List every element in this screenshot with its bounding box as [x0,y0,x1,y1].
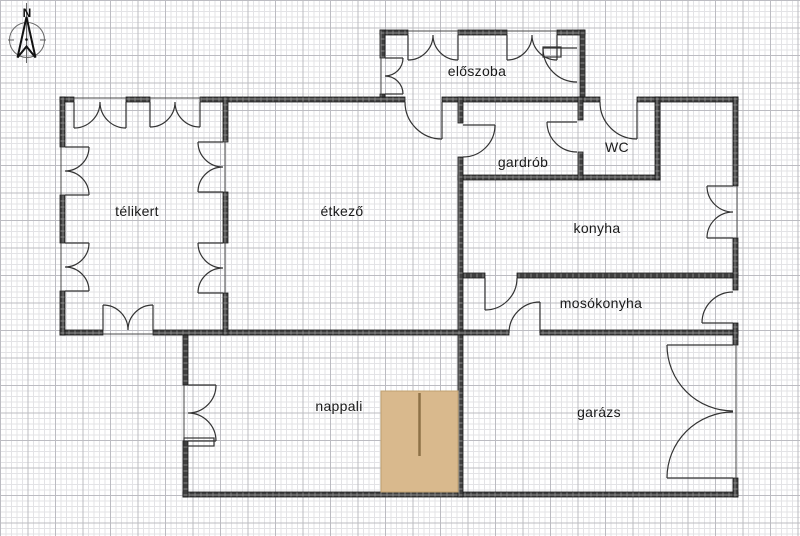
door-symbol [463,125,495,157]
wall-segment [200,97,405,102]
room-label-mosokonyha: mosókonyha [560,295,642,311]
wall-segment [733,478,738,497]
room-label-eloszoba: előszoba [448,63,506,79]
floor-plan-canvas: N előszoba gardrób WC télikert étkező ko… [0,0,800,536]
wall-segment [126,97,150,102]
floor-plan-drawing [0,0,800,536]
window-symbol [150,102,200,127]
wall-segment [153,330,509,335]
wall-segment [458,157,463,330]
wall-segment [578,152,583,180]
wall-segment [183,335,188,385]
window-symbol [65,243,89,291]
wall-segment [223,192,228,243]
wall-segment [733,238,738,290]
door-symbol [547,122,577,152]
wall-segment [733,97,738,186]
window-symbol [198,142,223,192]
window-symbol [385,58,403,94]
wall-segment [458,97,463,123]
double-door-symbol [408,35,458,60]
wall-segment [183,441,188,497]
wall-segment [60,291,65,335]
door-symbol [702,292,733,323]
wall-segment [578,97,583,120]
door-symbol [405,102,442,139]
staircase [381,391,458,492]
door-symbol [509,302,540,333]
window-symbol [188,385,216,441]
room-label-garazs: garázs [577,404,621,420]
wall-segment [442,97,600,102]
door-symbol [600,102,637,139]
room-label-nappali: nappali [315,398,362,414]
wall-segment [60,330,103,335]
wall-segment [458,335,463,497]
wall-segment [517,273,738,278]
compass-north-label: N [23,6,32,20]
compass-center-dot [25,38,28,41]
wall-segment [380,30,385,58]
window-symbol [103,305,153,330]
room-label-etkezo: étkező [320,203,363,219]
wall-segment [733,323,738,345]
window-symbol [65,147,89,195]
wall-segment [655,97,660,180]
window-sill [184,438,214,446]
window-symbol [707,186,733,238]
door-symbol [485,278,517,310]
room-label-telikert: télikert [115,203,159,219]
wall-segment [380,94,385,97]
window-symbol [198,243,223,293]
window-symbol [74,102,126,128]
wall-segment [540,330,738,335]
wall-segment [60,195,65,243]
wall-segment [223,97,228,142]
wall-segment [458,30,507,35]
wall-segment [60,97,65,147]
garage-double-door-symbol [667,345,733,478]
wall-segment [637,97,738,102]
wall-segment [458,175,660,180]
wall-segment [223,293,228,335]
room-label-gardrob: gardrób [498,154,548,170]
room-label-wc: WC [605,139,629,155]
door-symbol [543,48,577,82]
wall-segment [580,30,585,97]
room-label-konyha: konyha [574,220,621,236]
